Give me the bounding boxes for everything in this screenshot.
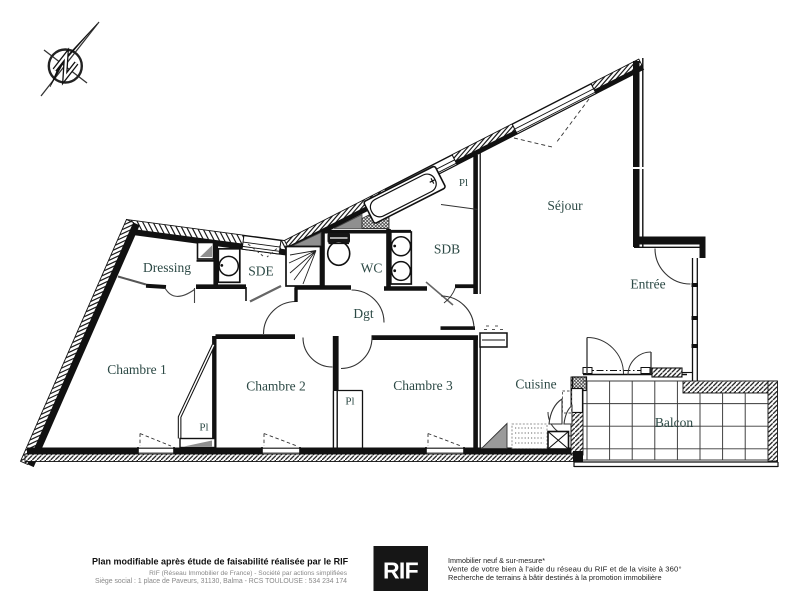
- svg-text:RIF: RIF: [383, 558, 419, 584]
- svg-text:Dgt: Dgt: [353, 306, 373, 321]
- svg-text:Cuisine: Cuisine: [515, 377, 556, 392]
- svg-text:Chambre 3: Chambre 3: [393, 378, 453, 393]
- svg-text:WC: WC: [361, 261, 383, 276]
- svg-text:Balcon: Balcon: [655, 415, 693, 430]
- svg-text:Siège social : 1 place de Pave: Siège social : 1 place de Paveurs, 31130…: [95, 578, 347, 585]
- svg-text:Dressing: Dressing: [143, 260, 191, 275]
- svg-text:Recherche de terrains à bâtir: Recherche de terrains à bâtir destinés à…: [448, 573, 662, 582]
- svg-text:Séjour: Séjour: [547, 198, 583, 213]
- svg-text:SDE: SDE: [248, 264, 274, 279]
- svg-text:Entrée: Entrée: [630, 277, 665, 292]
- svg-text:Plan modifiable après étude de: Plan modifiable après étude de faisabili…: [92, 557, 349, 567]
- svg-text:Chambre 2: Chambre 2: [246, 379, 306, 394]
- svg-text:Pl: Pl: [459, 177, 468, 189]
- svg-text:Chambre 1: Chambre 1: [107, 362, 167, 377]
- svg-text:RIF (Réseau Immobilier de Fran: RIF (Réseau Immobilier de France) - Soci…: [149, 570, 348, 577]
- svg-text:SDB: SDB: [434, 242, 460, 257]
- svg-text:Pl: Pl: [345, 396, 354, 408]
- svg-text:Pl: Pl: [199, 422, 208, 434]
